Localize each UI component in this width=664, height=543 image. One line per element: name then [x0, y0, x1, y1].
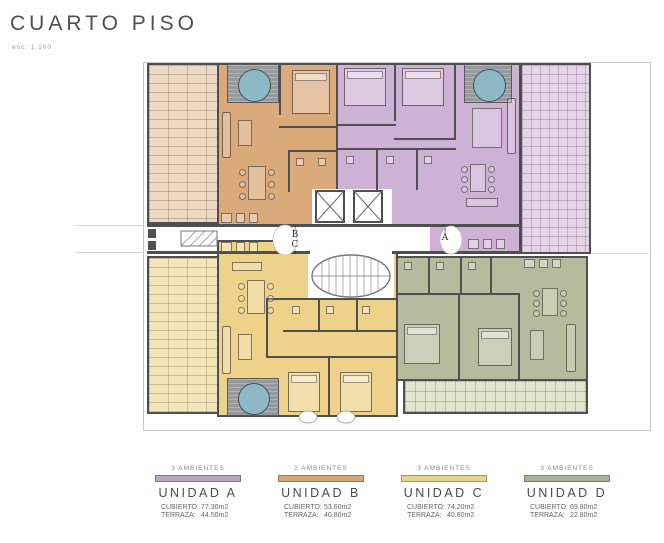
- terraza-label: TERRAZA:: [407, 512, 447, 519]
- legend-unit-name: UNIDAD D: [521, 486, 613, 500]
- wall: [328, 358, 330, 417]
- chair-icon: [268, 193, 275, 200]
- marker-unit-c: C ↓: [286, 241, 304, 255]
- bath-fixture-icon: [404, 262, 412, 270]
- bed-icon: [340, 372, 372, 412]
- legend-unit-a: 3 AMBIENTES UNIDAD A CUBIERTO:77.30m2 TE…: [152, 465, 244, 519]
- chair-icon: [560, 300, 567, 307]
- wall: [428, 256, 430, 295]
- bath-fixture-icon: [386, 156, 394, 164]
- cubierto-label: CUBIERTO:: [407, 504, 447, 511]
- kitchen-appliance-icon: [468, 239, 479, 249]
- pillow: [291, 375, 317, 383]
- coffee-table-icon: [238, 334, 252, 360]
- sofa-icon: [222, 112, 231, 158]
- wall: [490, 256, 492, 295]
- kitchen-appliance-icon: [221, 213, 232, 223]
- kitchen-appliance-icon: [552, 259, 561, 268]
- stairwell-box: [308, 253, 394, 299]
- bed-icon: [402, 68, 444, 106]
- dining-table-icon: [542, 288, 558, 316]
- jacuzzi-icon: [473, 69, 506, 102]
- bed-icon: [478, 328, 512, 366]
- dining-table-icon: [247, 280, 265, 314]
- tv-unit-icon: [530, 330, 544, 360]
- bed-icon: [344, 68, 386, 106]
- chair-icon: [488, 186, 495, 193]
- wall: [394, 63, 396, 121]
- chair-icon: [533, 300, 540, 307]
- bed-icon: [292, 70, 330, 114]
- wall: [288, 150, 290, 192]
- legend-unit-b: 2 AMBIENTES UNIDAD B CUBIERTO:53.60m2 TE…: [275, 465, 367, 519]
- legend-color-swatch: [524, 475, 610, 482]
- terrace-unit-a: [520, 63, 591, 254]
- dimension-line: [76, 252, 143, 253]
- cubierto-value: 53.60m2: [324, 504, 358, 511]
- wall: [266, 356, 397, 358]
- floor-plan-page: CUARTO PISO esc: 1:100: [0, 0, 664, 543]
- bath-fixture-icon: [346, 156, 354, 164]
- bed-icon: [288, 372, 320, 412]
- kitchen-appliance-icon: [496, 239, 505, 249]
- chair-icon: [488, 166, 495, 173]
- wall: [356, 300, 358, 330]
- jacuzzi-icon: [238, 69, 271, 102]
- terrace-unit-c: [147, 256, 219, 414]
- chair-icon: [461, 186, 468, 193]
- bath-fixture-icon: [424, 156, 432, 164]
- legend-color-swatch: [278, 475, 364, 482]
- kitchen-appliance-icon: [539, 259, 548, 268]
- legend-ambientes: 3 AMBIENTES: [398, 465, 490, 472]
- kitchen-appliance-icon: [524, 259, 535, 268]
- wall: [454, 63, 456, 140]
- chair-icon: [560, 310, 567, 317]
- pillow: [407, 327, 437, 335]
- bed-icon: [404, 324, 440, 364]
- bath-fixture-icon: [318, 158, 326, 166]
- legend-unit-name: UNIDAD C: [398, 486, 490, 500]
- kitchen-appliance-icon: [483, 239, 492, 249]
- wall: [416, 150, 418, 190]
- cubierto-value: 74.20m2: [447, 504, 481, 511]
- entry-passage: [147, 228, 217, 252]
- jacuzzi-deck-a: [464, 64, 512, 103]
- terrace-unit-d: [403, 379, 588, 414]
- bath-fixture-icon: [436, 262, 444, 270]
- marker-unit-a-label: A: [442, 233, 449, 243]
- corridor: [284, 227, 430, 253]
- kitchen-appliance-icon: [249, 213, 258, 223]
- legend-color-swatch: [155, 475, 241, 482]
- kitchen-appliance-icon: [236, 213, 245, 223]
- legend-unit-d: 3 AMBIENTES UNIDAD D CUBIERTO:69.80m2 TE…: [521, 465, 613, 519]
- cubierto-label: CUBIERTO:: [284, 504, 324, 511]
- kitchen-island-icon: [232, 262, 262, 271]
- chair-icon: [238, 295, 245, 302]
- marker-unit-b-label: B: [292, 230, 299, 240]
- chair-icon: [239, 193, 246, 200]
- jacuzzi-icon: [238, 383, 270, 415]
- jacuzzi-deck-c: [227, 378, 279, 416]
- marker-unit-b: ↑ B: [286, 226, 304, 240]
- chair-icon: [238, 283, 245, 290]
- coffee-table-icon: [238, 120, 252, 146]
- dining-table-icon: [248, 166, 266, 200]
- pillow: [481, 331, 509, 339]
- elevator-core: [312, 189, 392, 226]
- tv-unit-icon: [472, 108, 502, 148]
- wall: [288, 150, 338, 152]
- pillow: [405, 71, 441, 79]
- legend-ambientes: 3 AMBIENTES: [152, 465, 244, 472]
- wall: [460, 256, 462, 295]
- legend-ambientes: 2 AMBIENTES: [275, 465, 367, 472]
- wall: [518, 295, 520, 381]
- terraza-label: TERRAZA:: [161, 512, 201, 519]
- dimension-line: [591, 253, 649, 254]
- chair-icon: [239, 181, 246, 188]
- marker-unit-a: ↑ A: [436, 229, 454, 243]
- legend-unit-name: UNIDAD A: [152, 486, 244, 500]
- chair-icon: [267, 283, 274, 290]
- bath-fixture-icon: [362, 306, 370, 314]
- jacuzzi-deck-b: [227, 64, 279, 103]
- terrace-unit-b: [147, 63, 219, 224]
- terraza-value: 22.80m2: [570, 512, 604, 519]
- kitchen-island-icon: [466, 198, 498, 207]
- chair-icon: [268, 169, 275, 176]
- wall: [279, 126, 338, 128]
- wall: [394, 138, 456, 140]
- page-title: CUARTO PISO: [10, 12, 198, 36]
- chair-icon: [560, 290, 567, 297]
- chair-icon: [488, 176, 495, 183]
- chair-icon: [267, 295, 274, 302]
- wall: [266, 298, 397, 300]
- legend-unit-name: UNIDAD B: [275, 486, 367, 500]
- wall: [147, 224, 521, 227]
- sofa-icon: [222, 326, 231, 374]
- bath-fixture-icon: [292, 306, 300, 314]
- chair-icon: [239, 169, 246, 176]
- chair-icon: [461, 176, 468, 183]
- kitchen-appliance-icon: [236, 242, 245, 252]
- bath-fixture-icon: [468, 262, 476, 270]
- terraza-value: 40.80m2: [447, 512, 481, 519]
- wall: [336, 148, 456, 150]
- kitchen-appliance-icon: [249, 242, 258, 252]
- arrow-down-icon: ↓: [286, 250, 304, 255]
- chair-icon: [268, 181, 275, 188]
- bath-fixture-icon: [326, 306, 334, 314]
- pillow: [295, 73, 327, 81]
- sofa-icon: [566, 324, 576, 372]
- legend-unit-c: 3 AMBIENTES UNIDAD C CUBIERTO:74.20m2 TE…: [398, 465, 490, 519]
- dining-table-icon: [470, 164, 486, 192]
- chair-icon: [461, 166, 468, 173]
- terraza-value: 40.80m2: [324, 512, 358, 519]
- cubierto-value: 69.80m2: [570, 504, 604, 511]
- wall: [336, 124, 396, 126]
- legend-color-swatch: [401, 475, 487, 482]
- scale-note: esc: 1:100: [12, 44, 52, 51]
- terraza-label: TERRAZA:: [530, 512, 570, 519]
- wall: [392, 251, 521, 254]
- dimension-line: [76, 225, 143, 226]
- wall: [376, 150, 378, 190]
- cubierto-value: 77.30m2: [201, 504, 235, 511]
- wall: [318, 300, 320, 330]
- chair-icon: [533, 290, 540, 297]
- cubierto-label: CUBIERTO:: [161, 504, 201, 511]
- pillow: [343, 375, 369, 383]
- legend-ambientes: 3 AMBIENTES: [521, 465, 613, 472]
- wall: [283, 330, 397, 332]
- chair-icon: [238, 307, 245, 314]
- bath-fixture-icon: [296, 158, 304, 166]
- sofa-icon: [507, 98, 516, 154]
- terraza-value: 44.50m2: [201, 512, 235, 519]
- wall: [458, 295, 460, 381]
- wall: [279, 63, 281, 115]
- chair-icon: [533, 310, 540, 317]
- terraza-label: TERRAZA:: [284, 512, 324, 519]
- cubierto-label: CUBIERTO:: [530, 504, 570, 511]
- kitchen-appliance-icon: [221, 242, 232, 252]
- pillow: [347, 71, 383, 79]
- chair-icon: [267, 307, 274, 314]
